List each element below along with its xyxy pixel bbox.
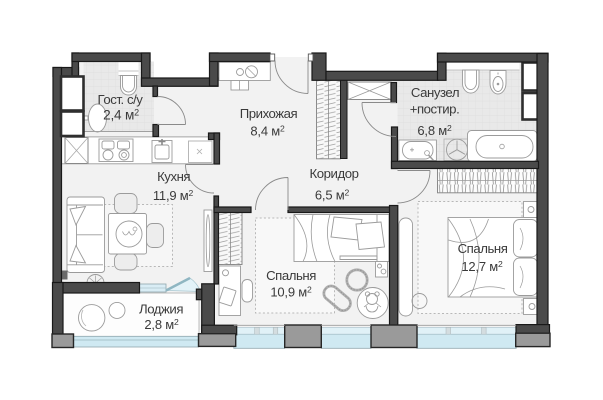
svg-text:Санузел: Санузел [411,85,459,100]
svg-text:12,7 м2: 12,7 м2 [461,259,503,274]
svg-text:Гост. с/у: Гост. с/у [98,92,144,107]
svg-text:Прихожая: Прихожая [240,106,298,121]
svg-text:Лоджия: Лоджия [139,302,183,317]
svg-text:Коридор: Коридор [310,166,359,181]
svg-text:6,5 м2: 6,5 м2 [315,188,350,203]
svg-text:Спальня: Спальня [458,241,508,256]
svg-text:2,8 м2: 2,8 м2 [144,317,179,332]
svg-text:6,8 м2: 6,8 м2 [417,123,452,138]
svg-text:Спальня: Спальня [266,268,316,283]
svg-text:11,9 м2: 11,9 м2 [153,188,194,203]
svg-text:10,9 м2: 10,9 м2 [270,285,312,300]
svg-text:+постир.: +постир. [410,102,460,117]
svg-text:2,4 м2: 2,4 м2 [103,108,139,123]
svg-text:Кухня: Кухня [157,169,190,184]
svg-text:8,4 м2: 8,4 м2 [250,124,285,139]
